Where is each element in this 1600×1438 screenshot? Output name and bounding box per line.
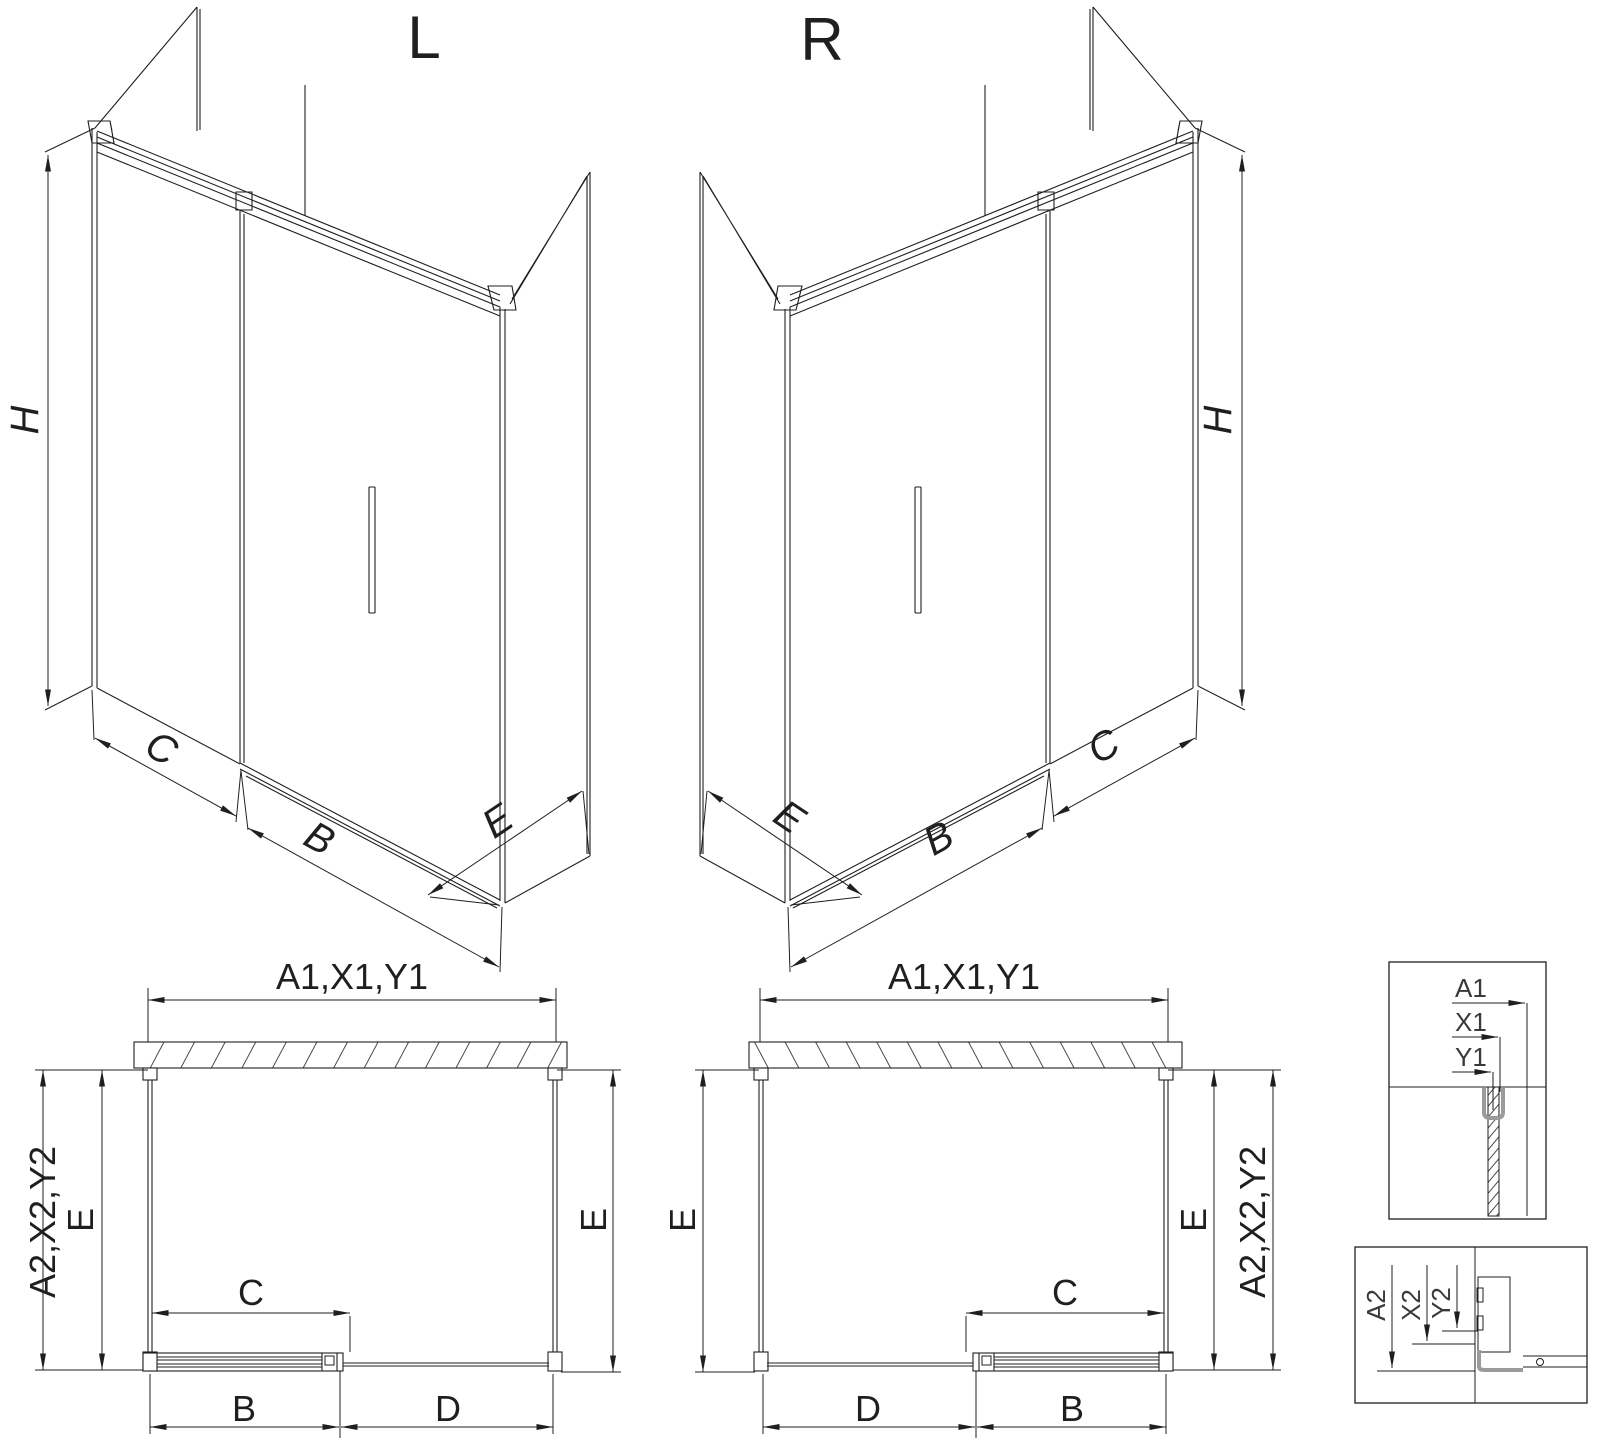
iso-right-height-dim-label: H (1196, 405, 1240, 434)
plan-right-outer-depth-dim-label: A2,X2,Y2 (1232, 1146, 1273, 1298)
plan-left-outer-depth-dim-label: A2,X2,Y2 (22, 1146, 63, 1298)
plan-left-fixed-dim-label: D (435, 1388, 461, 1429)
detail-box-bottom: A2 X2 Y2 (1355, 1247, 1587, 1403)
detail-box-top: A1 X1 Y1 (1389, 962, 1546, 1219)
iso-right-title: R (800, 6, 843, 73)
detail-bottom-y2-label: Y2 (1426, 1287, 1456, 1319)
plan-right-travel-dim-label: C (1052, 1272, 1078, 1313)
iso-view-left: L H C B E (3, 4, 590, 972)
plan-right-door-dim-label: B (1060, 1388, 1084, 1429)
iso-left-door-dim-label: B (297, 813, 342, 864)
plan-right-fixed-dim-label: D (855, 1388, 881, 1429)
detail-top-y1-label: Y1 (1455, 1042, 1487, 1072)
iso-right-side-dim-label: E (766, 792, 814, 844)
detail-top-a1-label: A1 (1455, 973, 1487, 1003)
plan-left-travel-dim-label: C (238, 1272, 264, 1313)
plan-right-depth-right-dim-label: E (1173, 1208, 1214, 1232)
plan-right-depth-left-dim-label: E (662, 1208, 703, 1232)
plan-left-depth-left-dim-label: E (60, 1208, 101, 1232)
detail-bottom-a2-label: A2 (1361, 1289, 1391, 1321)
iso-view-right: R H C B E (700, 6, 1245, 972)
iso-right-panel-dim-label: C (1080, 720, 1128, 773)
detail-top-x1-label: X1 (1455, 1007, 1487, 1037)
iso-left-title: L (407, 4, 440, 71)
plan-view-left: A1,X1,Y1 A2,X2,Y2 E E C B D (22, 956, 621, 1438)
technical-drawing-page: L H C B E R H C B E A1,X1,Y1 A2,X2,Y2 E … (0, 0, 1600, 1438)
iso-left-panel-dim-label: C (138, 722, 186, 775)
plan-right-width-dim-label: A1,X1,Y1 (888, 956, 1040, 997)
plan-left-width-dim-label: A1,X1,Y1 (276, 956, 428, 997)
plan-left-door-dim-label: B (232, 1388, 256, 1429)
shower-enclosure-diagram: L H C B E R H C B E A1,X1,Y1 A2,X2,Y2 E … (0, 0, 1600, 1438)
iso-right-door-dim-label: B (916, 813, 961, 864)
iso-left-height-dim-label: H (3, 405, 47, 434)
plan-view-right: A1,X1,Y1 A2,X2,Y2 E E C B D (662, 956, 1281, 1438)
detail-bottom-x2-label: X2 (1396, 1289, 1426, 1321)
plan-left-depth-right-dim-label: E (573, 1208, 614, 1232)
iso-left-side-dim-label: E (474, 795, 522, 847)
